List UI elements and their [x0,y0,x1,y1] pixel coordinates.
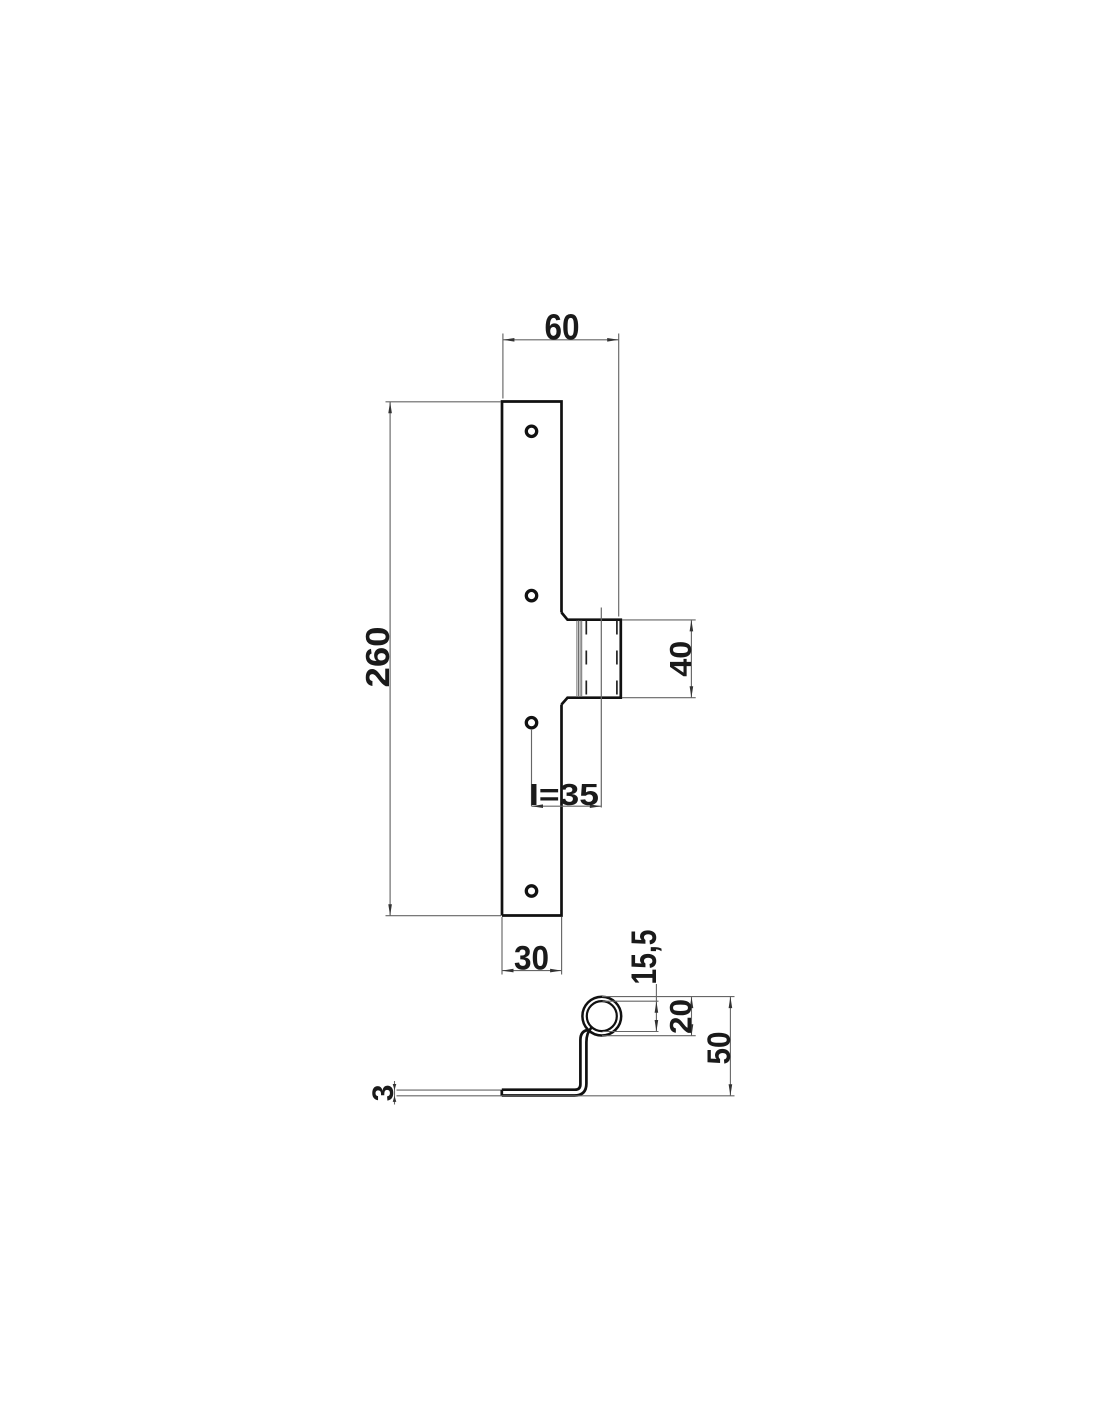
svg-text:260: 260 [359,627,396,688]
svg-text:40: 40 [663,641,698,677]
svg-text:30: 30 [514,940,549,978]
svg-text:I=35: I=35 [529,777,599,812]
svg-text:20: 20 [663,999,698,1034]
svg-text:3: 3 [367,1085,400,1102]
svg-text:60: 60 [545,307,580,348]
svg-text:15,5: 15,5 [625,930,664,985]
svg-text:50: 50 [701,1032,737,1065]
